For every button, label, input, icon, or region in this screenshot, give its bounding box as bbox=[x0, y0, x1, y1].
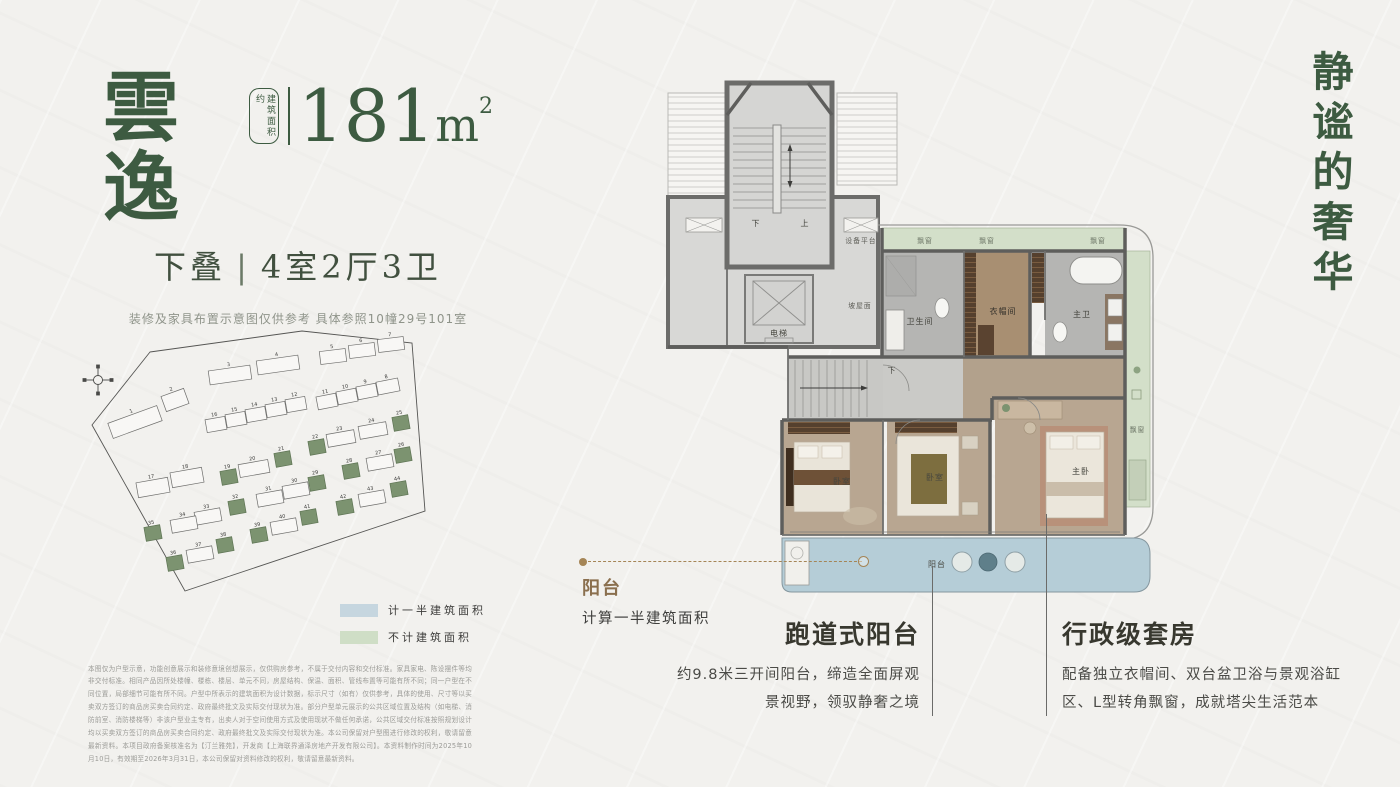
bay-window-label: 飘窗 bbox=[979, 236, 995, 245]
bedroom-1-label: 卧室 bbox=[833, 476, 851, 486]
siteplan-building: 17 bbox=[135, 471, 170, 497]
equipment-platform-label: 设备平台 bbox=[845, 236, 876, 245]
siteplan-building: 20 bbox=[237, 454, 270, 478]
svg-text:27: 27 bbox=[375, 450, 382, 457]
siteplan-building: 31 bbox=[255, 484, 284, 507]
legend-label: 不计建筑面积 bbox=[388, 629, 472, 645]
compass-icon bbox=[83, 365, 113, 395]
svg-text:43: 43 bbox=[367, 486, 374, 493]
balcony-callout-title: 阳台 bbox=[582, 574, 710, 600]
area-number: 181 bbox=[298, 74, 435, 158]
svg-text:41: 41 bbox=[304, 504, 311, 511]
siteplan: 1234567891011121314151617181920212223242… bbox=[75, 328, 475, 608]
siteplan-building: 25 bbox=[391, 409, 410, 431]
wardrobe bbox=[964, 251, 976, 357]
annotation-line: 约9.8米三开间阳台，缔造全面屏观 bbox=[620, 661, 920, 689]
subtitle-rooms: 4室2厅3卫 bbox=[261, 248, 442, 286]
floorplan: 设备平台 坡屋面 电梯 bbox=[620, 70, 1180, 610]
siteplan-building: 6 bbox=[348, 337, 376, 359]
siteplan-building: 5 bbox=[319, 343, 347, 365]
stair-down-label: 下 bbox=[752, 219, 761, 228]
bay-window-label: 飘窗 bbox=[1090, 236, 1106, 245]
svg-text:2: 2 bbox=[169, 386, 174, 393]
svg-text:39: 39 bbox=[254, 522, 261, 529]
svg-text:16: 16 bbox=[211, 412, 218, 419]
svg-text:34: 34 bbox=[179, 512, 186, 519]
svg-text:1: 1 bbox=[129, 408, 134, 415]
svg-text:11: 11 bbox=[321, 389, 328, 396]
bathroom-label: 卫生间 bbox=[907, 316, 934, 326]
callout-dashed-line bbox=[583, 561, 862, 562]
svg-text:5: 5 bbox=[330, 344, 334, 350]
svg-text:19: 19 bbox=[224, 464, 231, 471]
svg-text:14: 14 bbox=[251, 402, 258, 409]
svg-text:38: 38 bbox=[220, 532, 227, 539]
siteplan-building: 29 bbox=[307, 469, 326, 491]
siteplan-building: 38 bbox=[215, 531, 234, 553]
disclaimer-text: 本图仅为户型示意，功能创意展示和装修意境创想展示，仅供购房参考，不属于交付内容和… bbox=[88, 663, 472, 766]
siteplan-building: 39 bbox=[249, 521, 268, 543]
annotation-leader-1 bbox=[932, 566, 933, 716]
siteplan-building: 42 bbox=[335, 493, 354, 515]
svg-text:10: 10 bbox=[341, 384, 348, 391]
poster: 雲逸 建筑面积约 181m2 下叠|4室2厅3卫 装修及家具布置示意图仅供参考 … bbox=[0, 0, 1400, 787]
svg-text:42: 42 bbox=[340, 494, 347, 501]
siteplan-building: 18 bbox=[169, 461, 204, 487]
area-unit: m bbox=[435, 98, 479, 152]
svg-text:8: 8 bbox=[384, 374, 388, 380]
callout-ring bbox=[858, 556, 869, 567]
area-label-capsule: 建筑面积约 bbox=[249, 88, 279, 144]
annotation-title: 跑道式阳台 bbox=[620, 615, 920, 651]
siteplan-building: 15 bbox=[224, 405, 247, 427]
siteplan-building: 33 bbox=[193, 502, 222, 525]
cloakroom-label: 衣帽间 bbox=[990, 306, 1017, 316]
svg-text:37: 37 bbox=[195, 542, 202, 549]
siteplan-building: 12 bbox=[284, 390, 307, 412]
siteplan-building: 27 bbox=[365, 448, 394, 471]
siteplan-building: 41 bbox=[299, 503, 318, 525]
siteplan-building: 40 bbox=[269, 512, 298, 535]
siteplan-building: 4 bbox=[255, 349, 299, 375]
siteplan-building: 7 bbox=[377, 331, 405, 353]
siteplan-building: 23 bbox=[325, 424, 356, 448]
legend-swatch-green bbox=[340, 631, 378, 644]
svg-text:15: 15 bbox=[231, 407, 238, 414]
siteplan-building: 13 bbox=[264, 395, 287, 417]
bay-window-label: 飘窗 bbox=[917, 236, 933, 245]
siteplan-buildings: 1234567891011121314151617181920212223242… bbox=[106, 331, 412, 572]
svg-text:13: 13 bbox=[271, 397, 278, 404]
siteplan-building: 36 bbox=[165, 549, 184, 571]
legend-item-half-area: 计一半建筑面积 bbox=[340, 602, 486, 618]
master-bath-label: 主卫 bbox=[1073, 309, 1091, 319]
siteplan-building: 11 bbox=[315, 387, 338, 409]
product-name: 雲逸 bbox=[103, 68, 247, 228]
interior-stair-down-label: 下 bbox=[888, 366, 897, 375]
annotation-executive-suite: 行政级套房 配备独立衣帽间、双台盆卫浴与景观浴缸 区、L型转角飘窗，成就塔尖生活… bbox=[1062, 615, 1400, 718]
svg-text:24: 24 bbox=[368, 418, 375, 425]
annotation-line: 区、L型转角飘窗，成就塔尖生活范本 bbox=[1062, 689, 1400, 717]
svg-text:18: 18 bbox=[182, 464, 189, 471]
siteplan-building: 19 bbox=[219, 463, 238, 485]
svg-text:32: 32 bbox=[232, 494, 239, 501]
subtitle-separator: | bbox=[236, 248, 251, 286]
siteplan-building: 34 bbox=[169, 510, 198, 533]
svg-text:4: 4 bbox=[275, 352, 279, 358]
master-bedroom-label: 主卧 bbox=[1072, 466, 1090, 476]
siteplan-building: 24 bbox=[357, 416, 388, 440]
svg-text:40: 40 bbox=[279, 514, 286, 521]
bay-window-label: 飘窗 bbox=[1130, 425, 1146, 434]
svg-text:35: 35 bbox=[148, 520, 155, 527]
svg-text:44: 44 bbox=[394, 476, 401, 483]
svg-text:9: 9 bbox=[363, 379, 367, 385]
siteplan-legend: 计一半建筑面积 不计建筑面积 bbox=[340, 602, 486, 656]
svg-text:20: 20 bbox=[249, 456, 256, 463]
reference-note: 装修及家具布置示意图仅供参考 具体参照10幢29号101室 bbox=[103, 310, 493, 327]
siteplan-building: 32 bbox=[227, 493, 246, 515]
subtitle: 下叠|4室2厅3卫 bbox=[103, 242, 493, 288]
siteplan-building: 37 bbox=[185, 540, 214, 563]
svg-text:3: 3 bbox=[227, 362, 231, 368]
siteplan-building: 26 bbox=[393, 441, 412, 463]
siteplan-building: 22 bbox=[307, 433, 326, 455]
svg-text:21: 21 bbox=[278, 446, 285, 453]
svg-text:12: 12 bbox=[291, 392, 298, 399]
svg-text:26: 26 bbox=[398, 442, 405, 449]
svg-text:33: 33 bbox=[203, 504, 210, 511]
annotation-leader-2 bbox=[1046, 514, 1047, 716]
svg-text:28: 28 bbox=[346, 458, 353, 465]
siteplan-building: 3 bbox=[207, 359, 251, 385]
siteplan-building: 2 bbox=[159, 383, 189, 412]
siteplan-building: 14 bbox=[244, 400, 267, 422]
svg-text:23: 23 bbox=[336, 426, 343, 433]
balcony-label: 阳台 bbox=[928, 559, 946, 569]
annotation-line: 景视野，领驭静奢之境 bbox=[620, 689, 920, 717]
svg-text:36: 36 bbox=[170, 550, 177, 557]
bedroom-2-label: 卧室 bbox=[926, 472, 944, 482]
legend-swatch-blue bbox=[340, 604, 378, 617]
area-divider bbox=[288, 87, 290, 145]
svg-text:30: 30 bbox=[291, 478, 298, 485]
stair-up-label: 上 bbox=[801, 219, 810, 228]
annotation-runway-balcony: 跑道式阳台 约9.8米三开间阳台，缔造全面屏观 景视野，领驭静奢之境 bbox=[620, 615, 920, 718]
legend-item-no-area: 不计建筑面积 bbox=[340, 629, 486, 645]
siteplan-building: 10 bbox=[335, 382, 358, 404]
siteplan-building: 16 bbox=[204, 410, 227, 432]
siteplan-building: 1 bbox=[106, 400, 162, 438]
svg-text:25: 25 bbox=[396, 410, 403, 417]
siteplan-building: 30 bbox=[281, 476, 310, 499]
siteplan-building: 28 bbox=[341, 457, 360, 479]
siteplan-building: 43 bbox=[357, 484, 386, 507]
area-unit-sup: 2 bbox=[479, 94, 493, 119]
elevator: 电梯 bbox=[745, 275, 813, 343]
svg-text:6: 6 bbox=[359, 338, 363, 344]
subtitle-type: 下叠 bbox=[154, 248, 226, 286]
siteplan-building: 21 bbox=[273, 445, 292, 467]
svg-text:31: 31 bbox=[265, 486, 272, 493]
area-group: 建筑面积约 181m2 bbox=[249, 74, 493, 158]
svg-text:22: 22 bbox=[312, 434, 319, 441]
siteplan-building: 35 bbox=[143, 519, 162, 541]
siteplan-building: 44 bbox=[389, 475, 408, 497]
area-value: 181m2 bbox=[298, 74, 493, 158]
slogan: 静谧的奢华 bbox=[1299, 50, 1359, 300]
svg-text:7: 7 bbox=[388, 332, 392, 338]
title-block: 雲逸 建筑面积约 181m2 下叠|4室2厅3卫 装修及家具布置示意图仅供参考 … bbox=[103, 68, 493, 339]
annotation-title: 行政级套房 bbox=[1062, 615, 1400, 651]
sloped-roof-label: 坡屋面 bbox=[848, 301, 871, 310]
siteplan-building: 8 bbox=[375, 372, 400, 395]
stair-core: 下 上 bbox=[727, 83, 832, 267]
svg-text:17: 17 bbox=[148, 474, 155, 481]
siteplan-building: 9 bbox=[355, 377, 378, 399]
svg-text:29: 29 bbox=[312, 470, 319, 477]
elevator-label: 电梯 bbox=[770, 328, 788, 338]
balcony: 阳台 bbox=[782, 538, 1150, 592]
legend-label: 计一半建筑面积 bbox=[388, 602, 486, 618]
annotation-line: 配备独立衣帽间、双台盆卫浴与景观浴缸 bbox=[1062, 661, 1400, 689]
